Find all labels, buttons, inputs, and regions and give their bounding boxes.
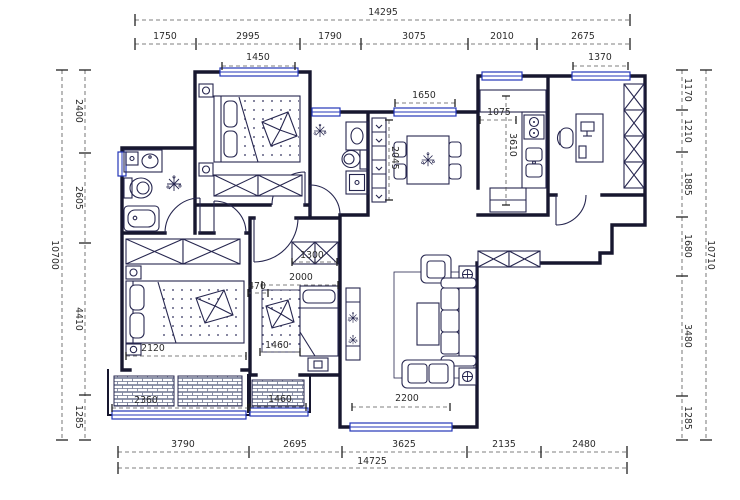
dimension-label: 1790 (318, 31, 342, 42)
dimension-label: 2135 (492, 439, 516, 450)
dimension-label: 1370 (588, 52, 612, 63)
nightstand (308, 358, 328, 371)
dimension-label: 3075 (402, 31, 426, 42)
dimension-label: 14295 (368, 7, 398, 18)
bathroom-2-fixtures (314, 122, 368, 194)
planter (178, 376, 242, 406)
tv-shelf (346, 288, 360, 360)
dimension-label: 1285 (682, 406, 693, 430)
dimension-label: 3625 (392, 439, 416, 450)
side-table (459, 368, 476, 385)
dimension-label: 1075 (487, 107, 511, 118)
dimension-label: 1750 (153, 31, 177, 42)
double-sink (526, 148, 542, 177)
dimension-label: 1885 (682, 172, 693, 196)
sofa (441, 278, 476, 366)
desk (576, 114, 603, 162)
vanity-counter (124, 150, 162, 172)
nightstand (126, 344, 141, 355)
dimension-label: 470 (248, 281, 266, 292)
dimension-label: 2605 (73, 186, 84, 210)
dimension-label: 10700 (49, 240, 60, 270)
double-bed (126, 281, 244, 343)
dimension-label: 1450 (246, 52, 270, 63)
hall-cabinet (478, 251, 540, 267)
floor-plan-canvas: 1429517502995179030752010267537902695362… (0, 0, 740, 500)
sink (351, 128, 363, 144)
plant-icon (167, 176, 181, 191)
living-room-furniture (394, 251, 540, 388)
lamp-icon (463, 372, 473, 382)
dimension-label: 2045 (389, 146, 400, 170)
kitchen-window (482, 72, 522, 80)
study-window (572, 72, 630, 80)
study-furniture (558, 84, 645, 188)
dimension-label: 2675 (571, 31, 595, 42)
bathroom-2-door (310, 185, 340, 215)
dimension-label: 3480 (682, 324, 693, 348)
nightstand (199, 163, 213, 176)
nightstand (199, 84, 213, 97)
wardrobe (126, 239, 240, 264)
chair (449, 164, 461, 179)
dimension-label: 10710 (705, 240, 716, 270)
dimension-label: 2695 (283, 439, 307, 450)
desk-chair (558, 128, 574, 148)
living-room-window (350, 423, 452, 431)
dimension-label: 3610 (507, 133, 518, 157)
plant-icon (314, 124, 326, 137)
dining-window (394, 108, 456, 116)
toilet (124, 178, 152, 198)
double-bed (214, 96, 300, 162)
dimension-label: 2200 (395, 393, 419, 404)
vanity-counter (346, 122, 368, 150)
dimension-label: 2400 (73, 99, 84, 123)
bedroom-3-door (254, 218, 298, 262)
dimension-label: 1650 (412, 90, 436, 101)
nightstand (126, 266, 141, 279)
dimension-label: 1210 (682, 119, 693, 143)
chair (449, 142, 461, 157)
dining-furniture (394, 136, 461, 184)
bathroom-1-fixtures (124, 150, 181, 231)
dimension-label: 2010 (490, 31, 514, 42)
dimension-label: 1285 (73, 405, 84, 429)
balcony-2-window (250, 408, 308, 416)
bathroom-2-window (312, 108, 340, 116)
dimension-label: 3790 (171, 439, 195, 450)
balcony-1-window (112, 411, 246, 419)
bathtub (124, 206, 159, 231)
loveseat (402, 360, 454, 388)
washing-machine (126, 152, 138, 165)
study-door (556, 195, 586, 225)
dimension-label: 1680 (682, 234, 693, 258)
wardrobe (214, 175, 302, 196)
cooktop (524, 115, 544, 139)
dimension-label: 2480 (572, 439, 596, 450)
dimension-label: 2120 (141, 343, 165, 354)
master-bedroom-window (220, 68, 298, 76)
dimension-label: 2995 (236, 31, 260, 42)
master-bedroom-furniture (199, 84, 302, 196)
dimension-label: 1170 (682, 78, 693, 102)
dimension-label: 1300 (300, 250, 324, 261)
bedroom-2-furniture (126, 239, 244, 355)
refrigerator (490, 188, 526, 212)
toilet (342, 150, 368, 169)
dimension-label: 2000 (289, 272, 313, 283)
floor-plan-drawing: 1429517502995179030752010267537902695362… (0, 0, 740, 500)
wardrobe (624, 84, 644, 188)
dimension-label: 14725 (357, 456, 387, 467)
cabinet-strip (372, 118, 386, 202)
dimension-label: 1460 (268, 394, 292, 405)
dimension-label: 1460 (265, 340, 289, 351)
dimension-label: 4410 (73, 307, 84, 331)
dimension-label: 2360 (134, 395, 158, 406)
coffee-table (417, 303, 439, 345)
shower (346, 171, 368, 194)
